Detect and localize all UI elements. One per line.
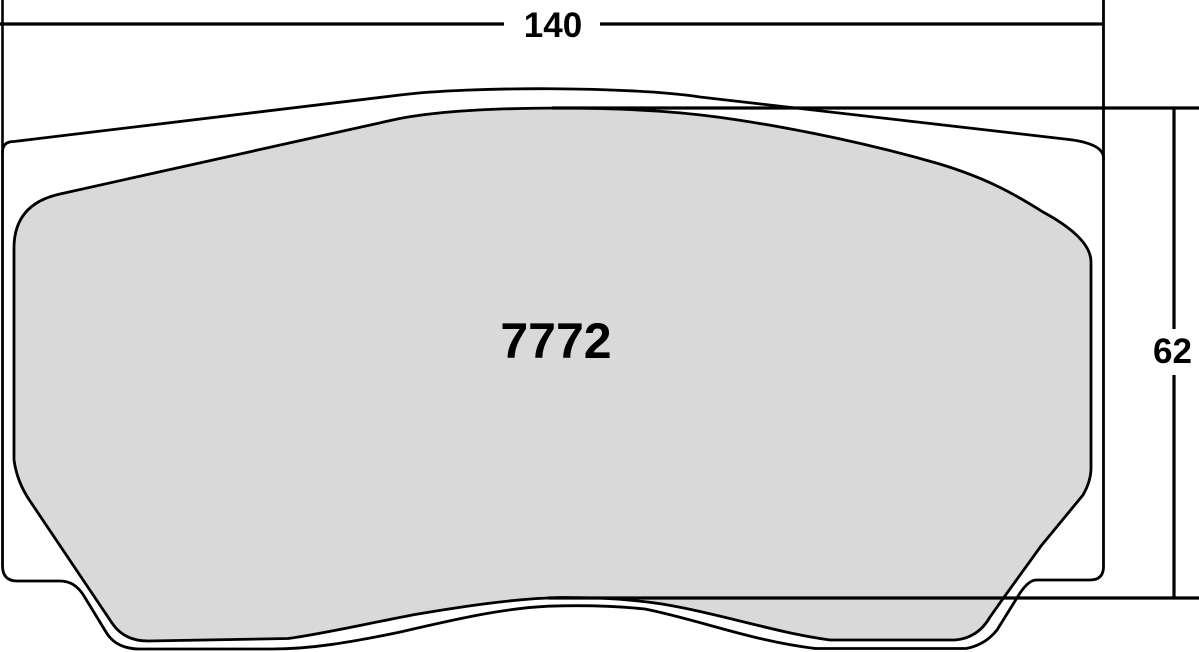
svg-text:7772: 7772	[500, 313, 611, 369]
svg-text:140: 140	[524, 6, 582, 45]
svg-text:62: 62	[1153, 332, 1192, 371]
